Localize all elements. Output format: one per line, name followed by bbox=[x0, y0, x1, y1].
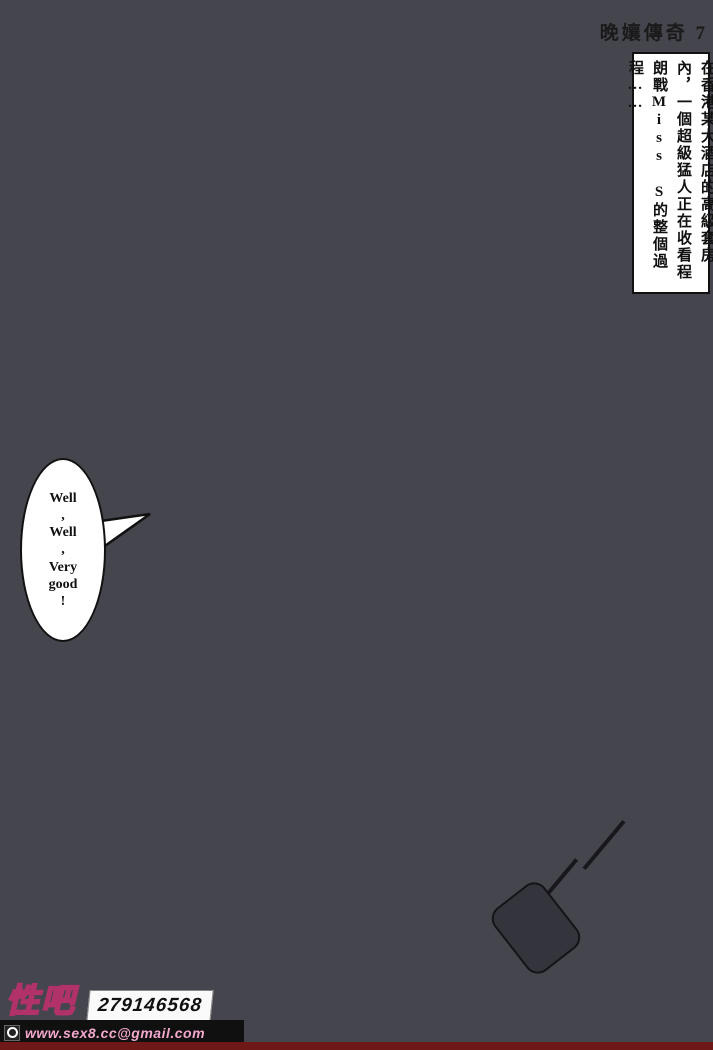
watermark-url: www.sex8.cc@gmail.com bbox=[25, 1025, 205, 1041]
page-bottom-strip bbox=[0, 1042, 713, 1050]
watermark-number: 279146568 bbox=[97, 995, 203, 1017]
watermark-logo: 性吧 bbox=[6, 984, 76, 1017]
narration-box: 在香港某大酒店的高級套房內，一個超級猛人正在收看程朗戰Miss S的整個過程…… bbox=[632, 52, 710, 294]
watermark-dot-icon bbox=[4, 1025, 20, 1041]
page-title: 晚孃傳奇 7 bbox=[566, 18, 708, 45]
watermark-number-box: 279146568 bbox=[86, 990, 213, 1022]
comic-page: Well , Well , Very good ! 晚孃傳奇 7 在香港某大酒店… bbox=[0, 0, 713, 1050]
speech-bubble: Well , Well , Very good ! bbox=[20, 458, 106, 642]
speech-bubble-text: Well , Well , Very good ! bbox=[49, 490, 78, 610]
narration-text: 在香港某大酒店的高級套房內，一個超級猛人正在收看程朗戰Miss S的整個過程…… bbox=[623, 60, 713, 286]
